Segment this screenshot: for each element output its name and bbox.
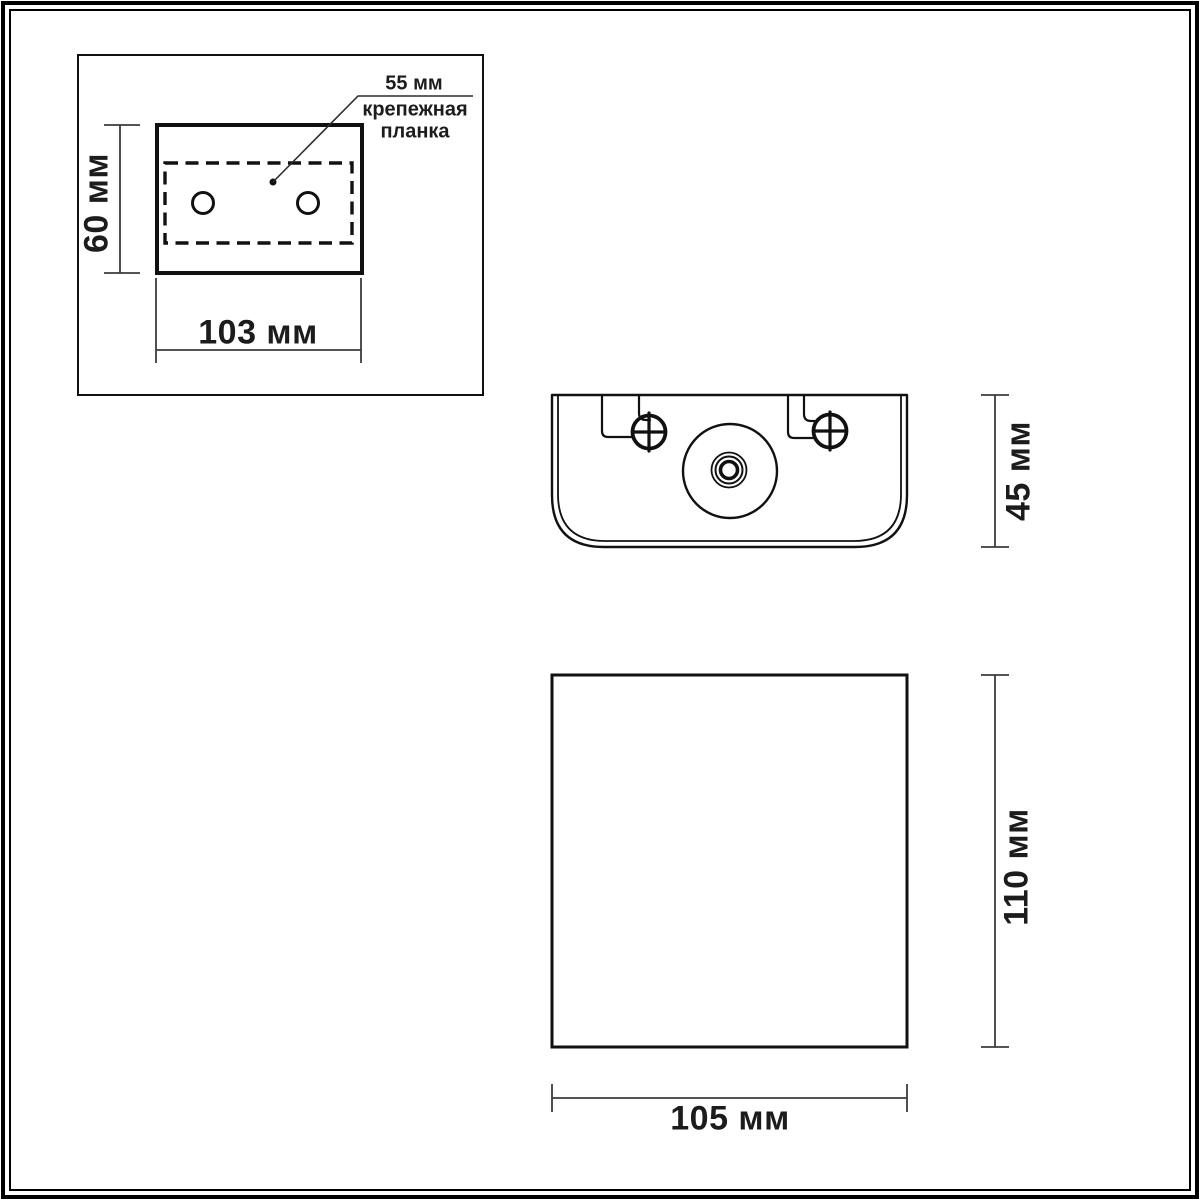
bracket-right-outer [788,396,813,438]
mounting-hole-left [193,193,214,214]
callout-label-line2: планка [362,121,467,143]
bracket-left-outer [602,396,632,437]
mounting-plate-outline [157,125,362,273]
screw-right-icon [814,412,847,450]
technical-drawing [0,0,1200,1200]
cable-entry-knockout [683,424,777,518]
mounting-bracket-callout-label: крепежная планка [362,99,467,142]
top-view-height-dimension-label: 45 мм [1000,421,1039,521]
front-view-outline [552,675,907,1047]
bracket-right-inner [804,396,815,421]
top-view-outer-outline [552,395,907,547]
front-height-dimension-label: 110 мм [998,808,1037,926]
plate-width-dimension-label: 103 мм [198,314,317,353]
cable-entry-outer-circle [683,424,777,518]
mounting-hole-right [298,193,319,214]
callout-label-line1: крепежная [362,99,467,121]
front-width-dimension-label: 105 мм [670,1100,789,1139]
callout-dimension-label: 55 мм [385,73,442,96]
fixture-top-view [552,395,907,547]
drawing-canvas: 60 мм 103 мм 55 мм крепежная планка 45 м… [0,0,1200,1200]
screw-left-icon [633,413,666,451]
plate-height-dimension-label: 60 мм [78,153,117,253]
cable-entry-ring-outer [712,453,747,488]
cable-entry-ring-inner [721,462,738,479]
